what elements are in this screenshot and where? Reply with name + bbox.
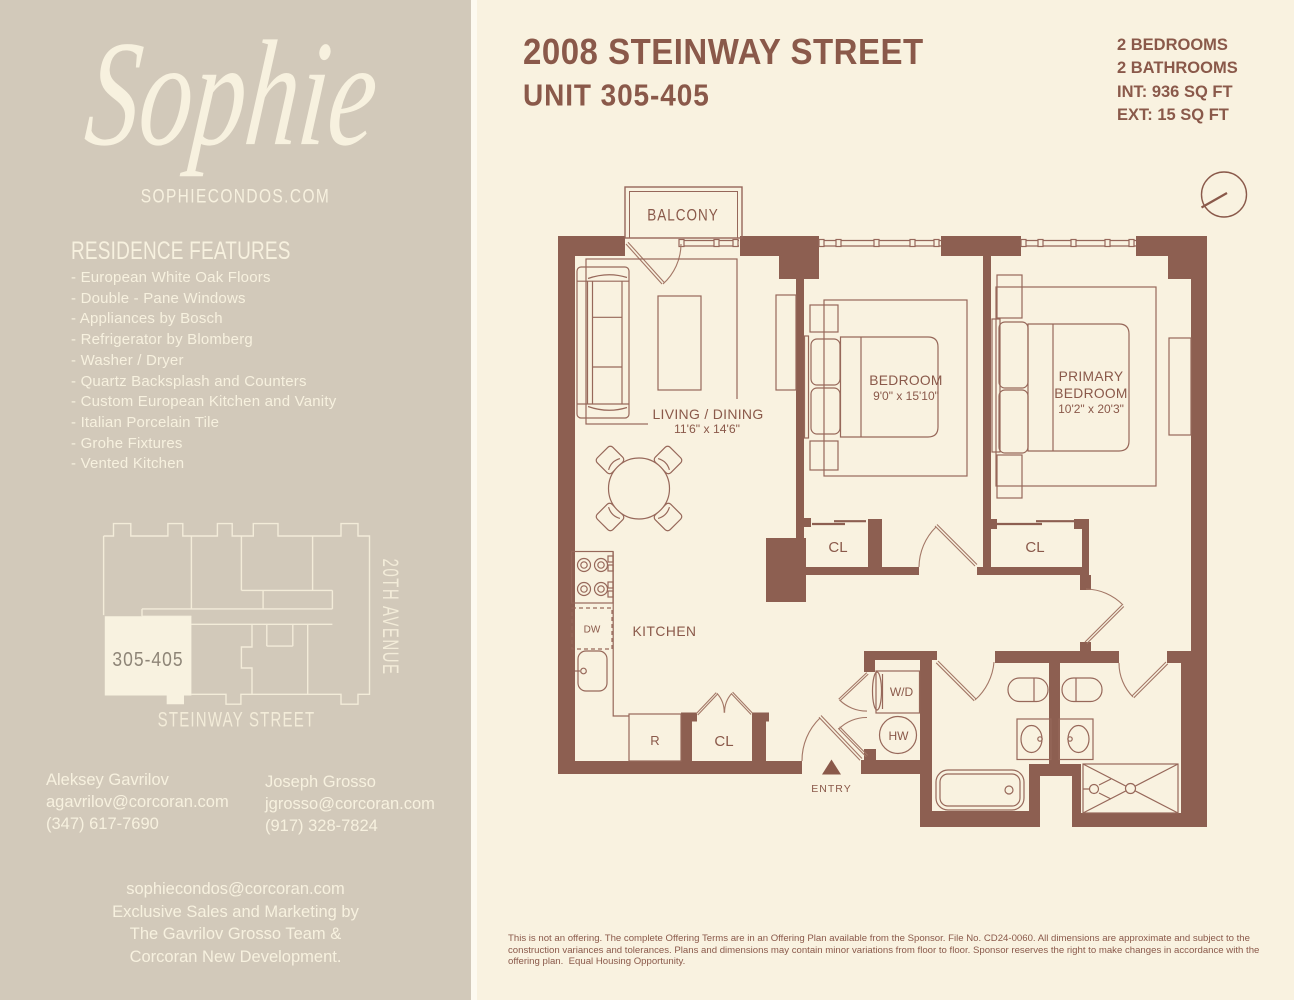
svg-text:HW: HW — [889, 729, 910, 743]
svg-text:LIVING / DINING: LIVING / DINING — [652, 406, 763, 422]
svg-text:DW: DW — [584, 625, 601, 636]
svg-text:BALCONY: BALCONY — [647, 206, 718, 225]
svg-text:10'2" x 20'3": 10'2" x 20'3" — [1058, 402, 1124, 416]
svg-text:CL: CL — [828, 539, 847, 556]
svg-text:11'6" x 14'6": 11'6" x 14'6" — [674, 422, 740, 436]
svg-text:R: R — [650, 733, 659, 748]
svg-text:CL: CL — [1025, 539, 1044, 556]
svg-text:PRIMARY: PRIMARY — [1059, 369, 1124, 384]
svg-text:9'0" x 15'10": 9'0" x 15'10" — [873, 389, 939, 403]
svg-text:W/D: W/D — [890, 685, 914, 699]
svg-text:KITCHEN: KITCHEN — [632, 624, 696, 639]
svg-text:ENTRY: ENTRY — [811, 783, 851, 795]
svg-text:BEDROOM: BEDROOM — [869, 373, 942, 388]
svg-text:BEDROOM: BEDROOM — [1054, 386, 1127, 401]
svg-text:CL: CL — [714, 733, 733, 750]
